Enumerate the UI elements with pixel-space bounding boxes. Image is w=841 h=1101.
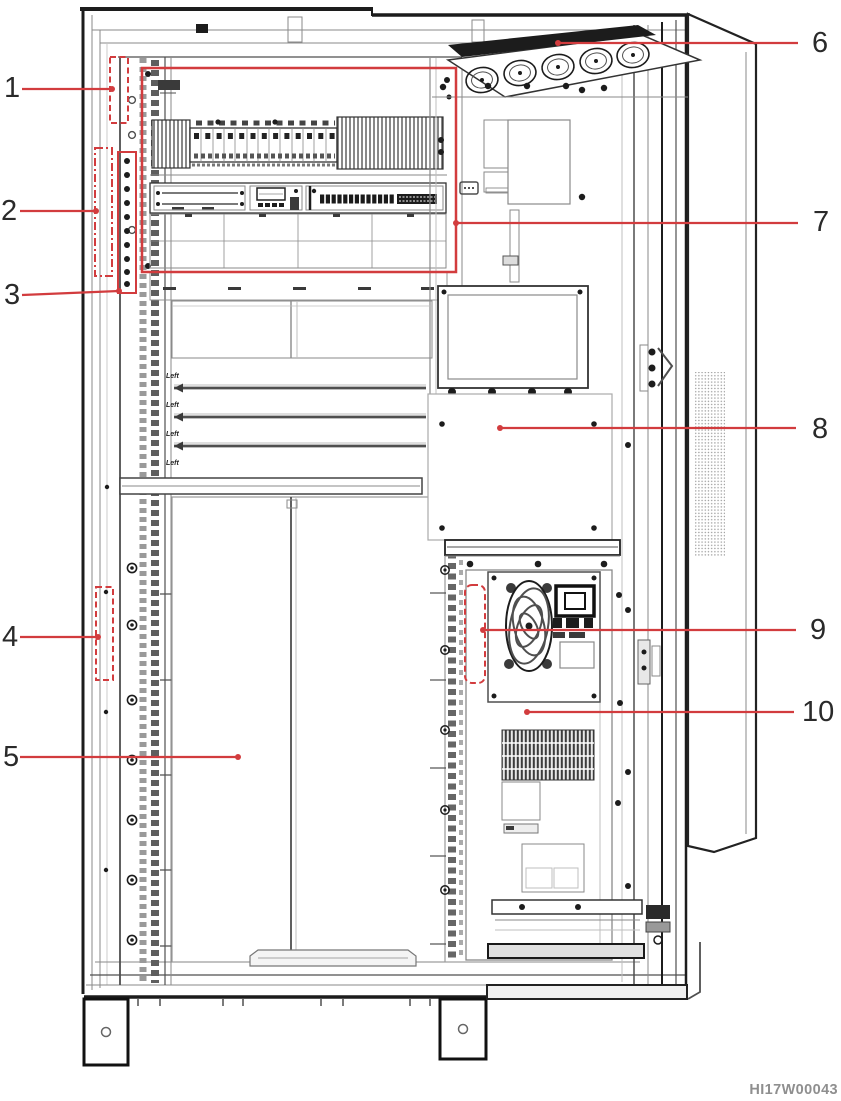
diagram-canvas: Left Left Left Left (0, 0, 841, 1101)
callout-number-2: 2 (1, 195, 17, 227)
upper-hinge (640, 345, 672, 391)
shelf-label-2: Left (166, 402, 180, 409)
recessed-box (438, 286, 588, 396)
mid-latch (638, 640, 660, 684)
shelf-label-4: Left (166, 460, 180, 467)
callout-number-9: 9 (810, 614, 826, 646)
callout-box-9 (465, 585, 485, 683)
figure-code: HI17W00043 (749, 1082, 838, 1098)
cross-beam (120, 478, 422, 494)
mid-panel (428, 394, 612, 540)
slide-rail-3 (174, 442, 426, 451)
callout-number-8: 8 (812, 413, 828, 445)
sub-rack (445, 540, 644, 960)
power-distribution-section (145, 71, 452, 300)
callout-number-6: 6 (812, 27, 828, 59)
lower-hinge (646, 905, 670, 944)
fan-module (488, 572, 600, 702)
callout-number-3: 3 (4, 279, 20, 311)
monitoring-unit-row (150, 183, 446, 213)
shelf-label-3: Left (166, 431, 180, 438)
dashes-row (150, 272, 447, 300)
blank-grid (150, 214, 446, 268)
cabinet-diagram: Left Left Left Left (0, 0, 841, 1101)
door-hinge-column (622, 15, 686, 995)
slide-rail-2 (174, 413, 426, 422)
equipment-label (158, 80, 180, 90)
callout-number-7: 7 (813, 206, 829, 238)
breaker-row (150, 117, 447, 175)
mesh-vent (695, 372, 725, 556)
callout-number-4: 4 (2, 621, 18, 653)
cabinet-base (84, 985, 687, 1065)
battery-compartment (172, 497, 461, 966)
callout-number-5: 5 (3, 741, 19, 773)
callout-number-10: 10 (802, 696, 834, 728)
heatsink-icon (502, 730, 594, 780)
fan-icon (504, 581, 555, 671)
terminal-strip (124, 158, 130, 287)
shelf-label-1: Left (166, 373, 180, 380)
callout-number-1: 1 (4, 72, 20, 104)
slide-rail-1 (174, 384, 426, 393)
right-door (688, 14, 756, 999)
callout-box-4 (96, 587, 113, 680)
